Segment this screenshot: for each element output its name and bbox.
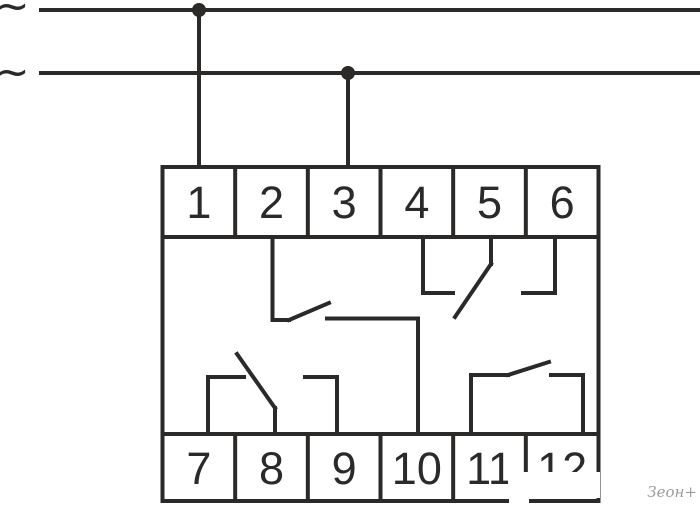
relay-contacts-layer bbox=[208, 237, 583, 434]
junction-dot bbox=[192, 3, 206, 17]
supply-lines-layer bbox=[41, 3, 700, 167]
ac-phase-symbol-bottom: ~ bbox=[0, 47, 30, 96]
terminal-number-3: 3 bbox=[332, 177, 357, 228]
terminal-number-6: 6 bbox=[550, 177, 575, 228]
watermark-text: Зеон+ bbox=[647, 483, 697, 501]
terminal-number-2: 2 bbox=[259, 177, 284, 228]
terminal-number-8: 8 bbox=[259, 443, 284, 494]
terminal-block-layer bbox=[163, 167, 599, 501]
terminal-number-9: 9 bbox=[332, 443, 357, 494]
terminal-number-1: 1 bbox=[186, 177, 211, 228]
terminal-number-11: 11 bbox=[466, 443, 513, 494]
contact-wire bbox=[289, 303, 329, 320]
contact-wire bbox=[237, 354, 275, 408]
watermark-patch bbox=[509, 496, 529, 508]
terminal-number-5: 5 bbox=[477, 177, 502, 228]
terminal-number-10: 10 bbox=[392, 443, 442, 494]
terminal-number-4: 4 bbox=[404, 177, 429, 228]
terminal-number-7: 7 bbox=[186, 443, 211, 494]
diagram-canvas: ~ ~ 123456789101112 Зеон+ bbox=[0, 0, 700, 509]
wiring-diagram: ~ ~ 123456789101112 Зеон+ bbox=[0, 0, 700, 509]
ac-phase-symbol-top: ~ bbox=[0, 0, 30, 30]
junction-dot bbox=[341, 66, 355, 80]
watermark-patch bbox=[508, 472, 600, 498]
contact-wire bbox=[508, 362, 549, 375]
contact-wire bbox=[455, 264, 491, 317]
